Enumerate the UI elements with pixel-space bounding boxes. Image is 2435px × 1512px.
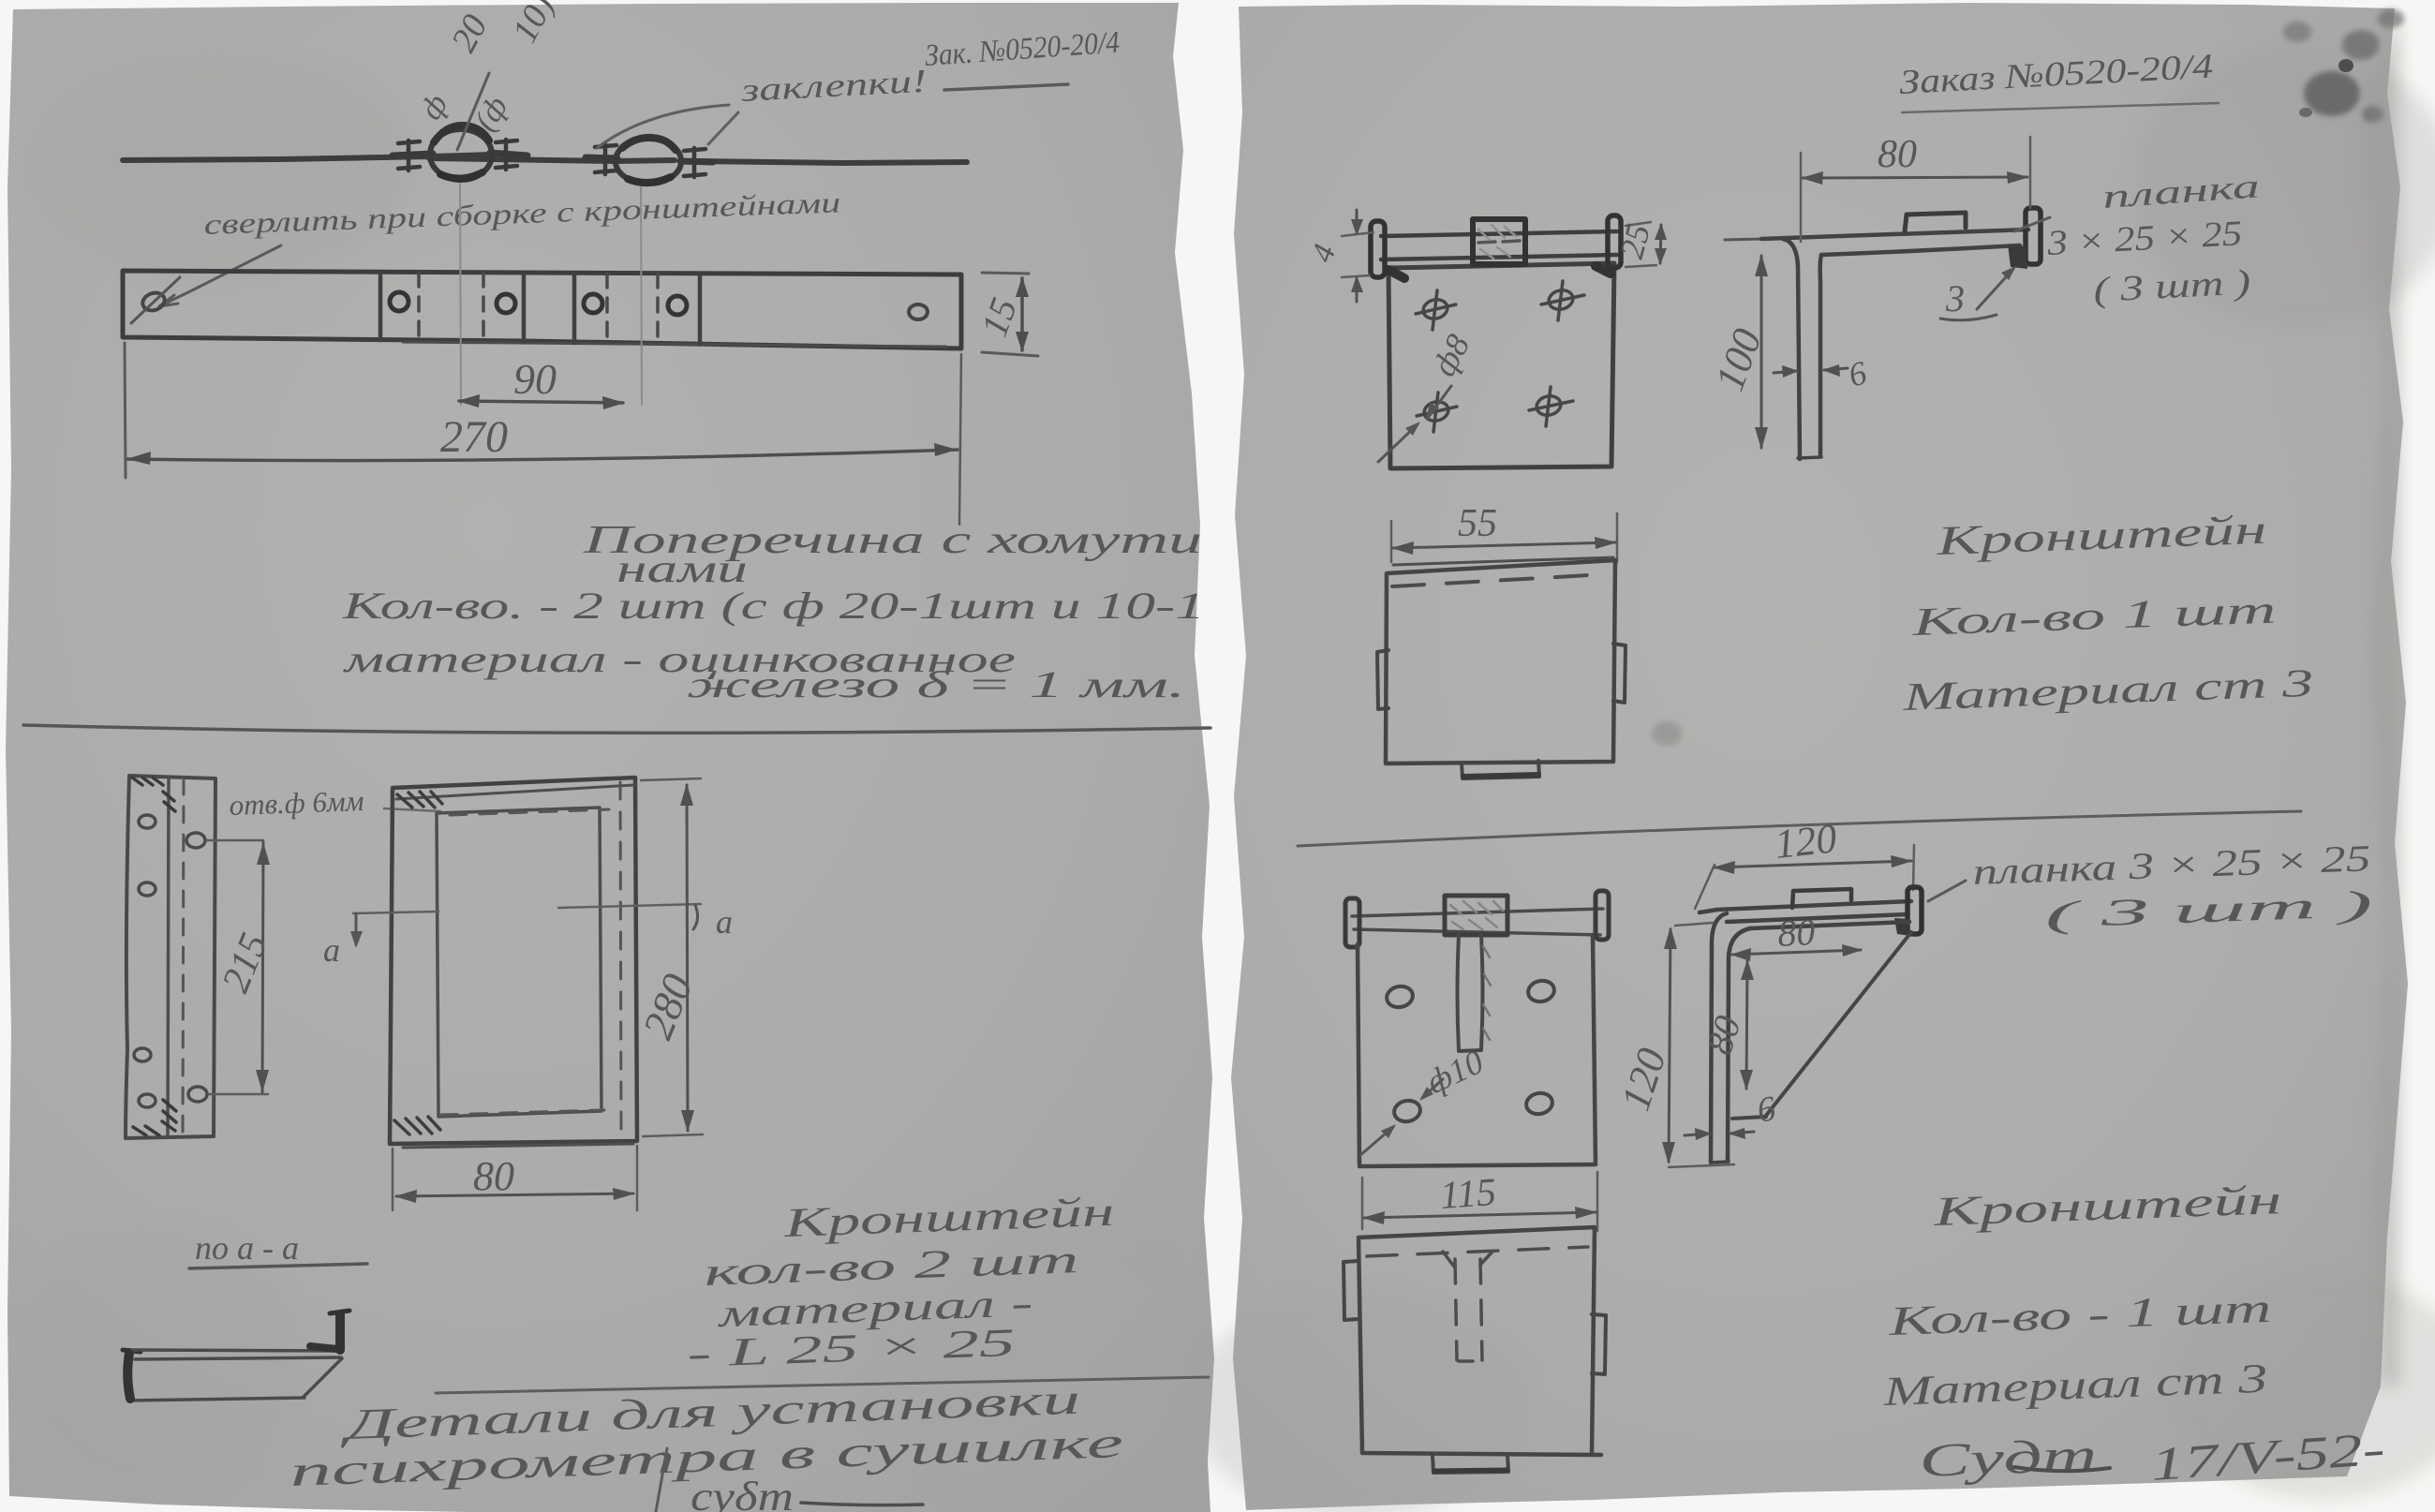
svg-text:3: 3: [1945, 277, 1965, 319]
svg-text:а: а: [323, 931, 340, 969]
svg-text:115: 115: [1438, 1171, 1497, 1218]
svg-text:120: 120: [1773, 815, 1839, 867]
svg-text:( 3 шт ): ( 3 шт ): [2092, 262, 2251, 310]
svg-text:железо δ = 1 мм.: железо δ = 1 мм.: [687, 663, 1185, 705]
svg-text:80: 80: [473, 1153, 514, 1199]
svg-text:Судт: Судт: [1918, 1428, 2098, 1487]
svg-text:отв.ф 6мм: отв.ф 6мм: [229, 784, 364, 822]
svg-text:Кол-во. - 2 шт (с ф 20-1шт: Кол-во. - 2 шт (с ф 20-1шт и 10-1: [341, 585, 1205, 627]
svg-text:80: 80: [1878, 133, 1917, 176]
svg-text:80: 80: [1776, 911, 1816, 955]
svg-text:270: 270: [440, 412, 508, 462]
svg-text:суδт: суδт: [690, 1474, 794, 1512]
svg-text:а: а: [716, 903, 733, 941]
svg-text:55: 55: [1458, 502, 1497, 545]
svg-text:по а - а: по а - а: [195, 1229, 299, 1267]
svg-text:90: 90: [513, 355, 557, 403]
